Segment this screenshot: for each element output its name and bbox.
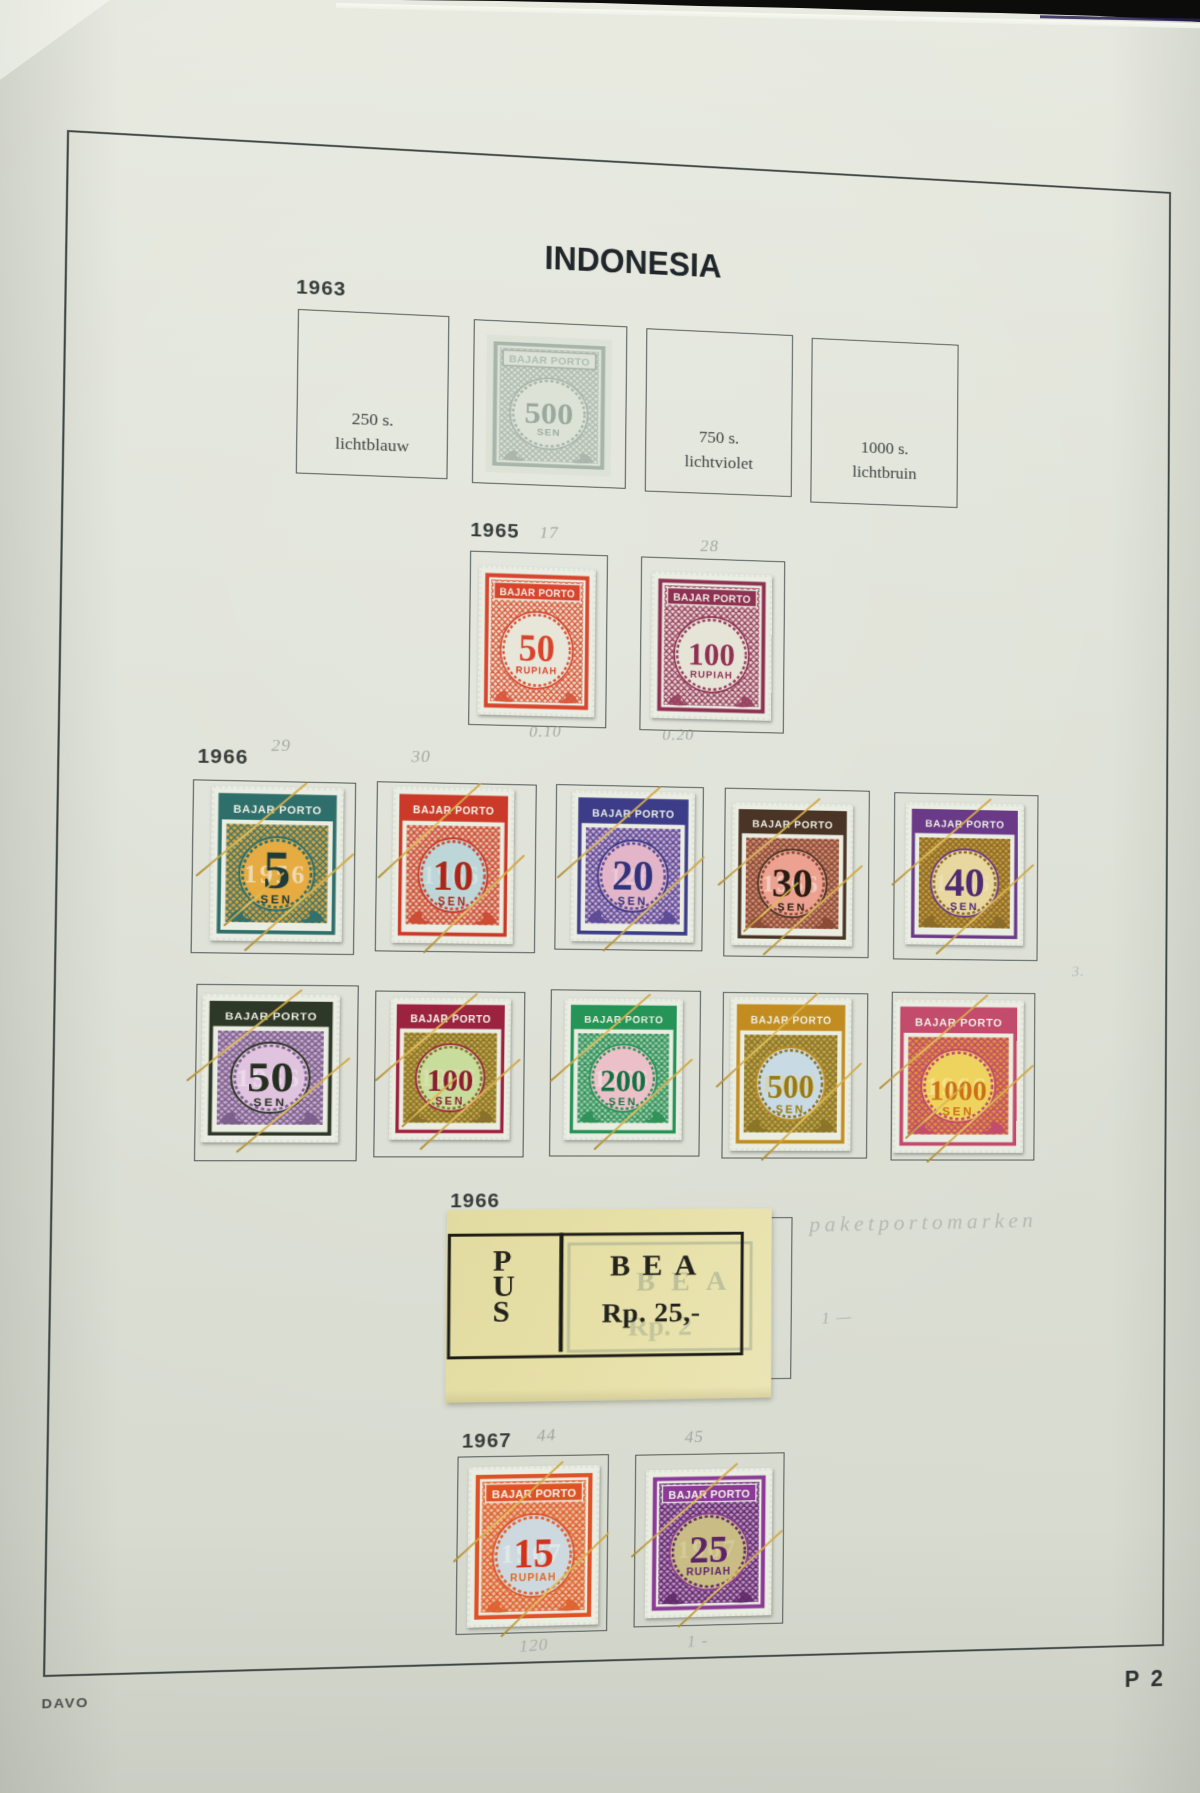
svg-text:SEN: SEN (942, 1105, 974, 1118)
svg-text:5: 5 (263, 840, 291, 900)
svg-text:50: 50 (247, 1054, 294, 1101)
svg-text:10: 10 (432, 851, 474, 900)
svg-text:SEN: SEN (253, 1096, 287, 1109)
svg-text:SEN: SEN (260, 892, 292, 906)
svg-text:50: 50 (518, 628, 555, 671)
svg-text:SEN: SEN (438, 896, 468, 909)
svg-text:SEN: SEN (776, 1103, 806, 1116)
svg-text:RUPIAH: RUPIAH (690, 670, 733, 682)
svg-text:40: 40 (944, 861, 984, 905)
svg-text:SEN: SEN (609, 1097, 638, 1109)
svg-text:SEN: SEN (777, 902, 807, 914)
svg-text:500: 500 (524, 397, 573, 432)
svg-text:RUPIAH: RUPIAH (686, 1567, 731, 1578)
svg-text:200: 200 (600, 1064, 646, 1098)
svg-text:100: 100 (688, 637, 735, 674)
svg-text:20: 20 (612, 852, 654, 900)
svg-text:SEN: SEN (537, 428, 561, 439)
svg-text:SEN: SEN (618, 895, 648, 908)
svg-text:BAJAR PORTO: BAJAR PORTO (500, 586, 575, 600)
svg-text:SEN: SEN (435, 1096, 465, 1108)
svg-text:25: 25 (689, 1527, 729, 1570)
svg-text:RUPIAH: RUPIAH (516, 665, 557, 677)
svg-text:RUPIAH: RUPIAH (510, 1571, 557, 1584)
svg-text:15: 15 (513, 1531, 554, 1577)
svg-text:500: 500 (767, 1069, 814, 1105)
svg-text:SEN: SEN (950, 902, 979, 914)
svg-text:BAJAR PORTO: BAJAR PORTO (668, 1489, 750, 1502)
svg-text:BAJAR PORTO: BAJAR PORTO (673, 592, 751, 606)
